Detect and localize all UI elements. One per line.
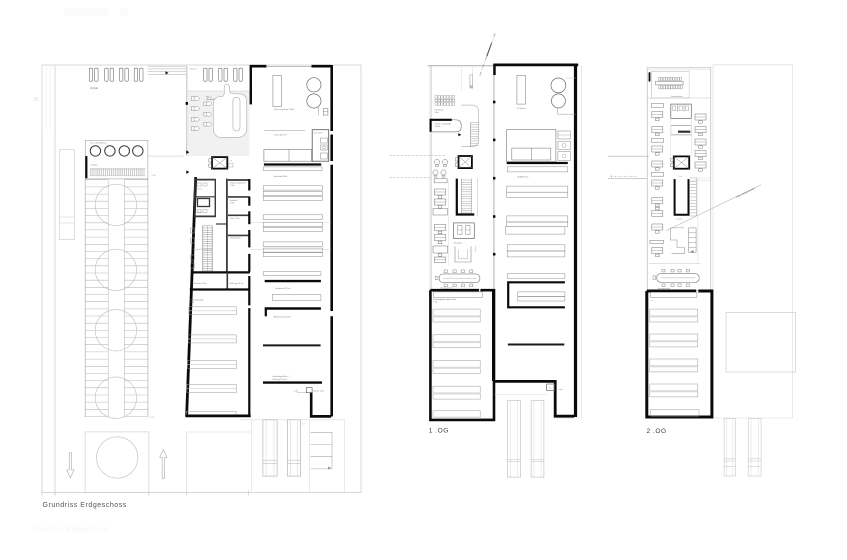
svg-text:17.8m²: 17.8m² (230, 184, 236, 187)
svg-text:Anlieferung 81.5m²: Anlieferung 81.5m² (274, 316, 291, 319)
svg-text:Sitzungszi.: Sitzungszi. (454, 241, 463, 244)
svg-text:+1.50: +1.50 (294, 390, 299, 392)
svg-text:LM Abfüllraum: LM Abfüllraum (517, 176, 529, 179)
svg-text:Umschlagsfläche /: Umschlagsfläche / (272, 376, 289, 378)
svg-text:Spedition 81.5m²: Spedition 81.5m² (275, 287, 290, 290)
svg-text:+1.50: +1.50 (150, 417, 154, 419)
svg-text:1 .OG: 1 .OG (429, 427, 449, 434)
svg-text:Sitzungszimmer: Sitzungszimmer (658, 287, 671, 290)
svg-text:Lager: Lager (559, 388, 564, 391)
svg-text:+ Lift: + Lift (678, 175, 682, 178)
svg-text:Umschlagslager: Umschlagslager (189, 299, 204, 301)
svg-text:Infotafel: Infotafel (91, 163, 99, 166)
svg-text:1 .66: 1 .66 (433, 302, 437, 304)
svg-text:Tiefkühlraum 10.5m²: Tiefkühlraum 10.5m² (192, 282, 208, 285)
svg-text:+1.50: +1.50 (151, 175, 156, 177)
svg-text:Büro 22.7m²: Büro 22.7m² (314, 132, 324, 135)
svg-text:+x: +x (651, 300, 653, 302)
svg-text:Labor 17.8m²: Labor 17.8m² (230, 217, 240, 220)
svg-text:Grundriss Erdgeschoss: Grundriss Erdgeschoss (32, 526, 110, 533)
svg-text:Grundriss Erdgeschoss: Grundriss Erdgeschoss (43, 502, 127, 509)
svg-text:Wartung 16.2m²: Wartung 16.2m² (272, 378, 287, 381)
svg-text:Vorplatz: Vorplatz (90, 87, 99, 90)
svg-text:Eingang: Eingang (190, 69, 197, 71)
svg-text:Velo - Abstellplätze: Velo - Abstellplätze (90, 142, 108, 145)
svg-text:Warenannahme 210m²: Warenannahme 210m² (274, 108, 295, 111)
svg-text:2 .OG: 2 .OG (647, 428, 667, 435)
svg-text:Niveau ±0.00: Niveau ±0.00 (314, 390, 325, 392)
svg-text:Kühl-Lager 13.7m²: Kühl-Lager 13.7m² (230, 282, 244, 285)
svg-text:WC H: WC H (198, 212, 203, 214)
svg-text:CD Räume: CD Räume (517, 108, 526, 110)
svg-text:17.8m²: 17.8m² (230, 201, 236, 204)
svg-text:8.0m²: 8.0m² (434, 111, 439, 114)
svg-text:M i e t e r a u s b a u: M i e t e r a u s b a u (611, 175, 637, 178)
svg-text:WC D: WC D (198, 189, 203, 191)
svg-text:14.4m²: 14.4m² (435, 125, 441, 128)
svg-text:Technik 20.6m²: Technik 20.6m² (230, 236, 242, 239)
svg-text:Vorrat 83.3 m²: Vorrat 83.3 m² (274, 133, 287, 136)
svg-text:Werkstatt: Werkstatt (206, 98, 214, 101)
svg-text:x: x (700, 264, 701, 266)
svg-text:Werkstatt 89m²: Werkstatt 89m² (274, 175, 288, 178)
